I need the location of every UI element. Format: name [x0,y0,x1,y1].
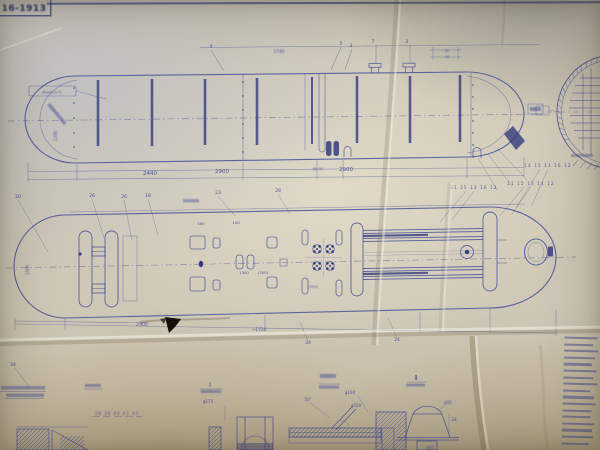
technical-drawing: 2440290080 40290057404537250408mm≈175120… [0,0,600,450]
dim-5740: 5740 [274,49,285,54]
manhole [525,239,554,265]
dim-50: 50 [445,49,449,53]
detail-views [0,368,459,450]
notes-line [563,409,592,412]
dim-d550: φ550 [351,403,362,408]
balloon-row-c: 21 25 13 16 12 [450,185,497,190]
blueprint-photo: 2440290080 40290057404537250408mm≈175120… [0,0,600,450]
balloon-34-a: 34 [305,340,311,346]
notes-line [562,422,594,425]
balloon-34-b: 34 [10,362,16,368]
title-block: 16-1913 [0,0,51,16]
detail-a-flange [209,405,273,450]
notes-line [562,416,590,419]
dim-350: (350) [308,284,319,289]
balloon-3: 3 [350,43,353,49]
rail-nozzle-dot [465,250,469,254]
bevel-note-strip [47,103,66,125]
notes-line [562,442,589,445]
balloon-23: 23 [215,190,221,196]
drain-nozzle-dark-a [326,141,332,156]
rivet-dots [73,81,474,153]
left-head-nozzle-dot [78,252,81,255]
dim-1200: 1200 [53,130,58,141]
notes-line [563,396,594,399]
part-number-row: 38 39 40 41 42 [95,411,140,416]
notes-line [562,435,593,438]
dim-1500: 1500 [25,264,30,275]
balloon-row-b: 11 15 13 14 12 [507,181,554,186]
notes-line [563,383,597,386]
detail-label-2: Ⅱ [414,374,417,382]
notes-line [563,389,590,392]
balloon-18: 18 [145,193,151,199]
end-view-note-strip [571,154,593,157]
notes-line [564,370,597,373]
callout-box-left-leader [76,91,106,99]
dim-2905: 2905 [136,322,148,328]
end-view [536,55,600,170]
bottom-fittings [326,141,481,158]
label-strips [1,374,425,397]
dim-d175: φ175 [203,399,214,404]
notes-line [564,350,598,353]
balloon-26-b: 26 [121,194,127,200]
dim-d95: φ95 [444,400,452,405]
annotation-texts: 2440290080 40290057404537250408mm≈175120… [10,39,572,450]
dim-580: 580 [197,221,205,226]
balloon-28: 28 [275,188,281,194]
notes-line [564,356,595,359]
ladder-rungs [569,68,600,155]
drawing-number: 16-1913 [2,3,47,15]
heating-coil-left [79,231,137,307]
balloon-26-a: 26 [89,193,95,199]
callout-box-right-text [530,107,541,111]
drain-nozzle-outline-a [344,147,351,158]
bottom-leaders [15,368,30,388]
dim-80-40: 80 40 [313,167,324,171]
plan-centerline [6,257,576,268]
balloon-leaders [18,169,548,341]
dim-d50: φ50 [426,445,434,450]
balloon-row-a: 14 15 13 16 12 [524,163,571,168]
balloon-20: 20 [15,194,21,200]
elevation-dimensions [28,45,540,183]
rail-assembly [351,212,507,296]
plan-dimensions [15,199,556,336]
balloon-2: 2 [406,39,409,45]
dim-28: 28 [451,417,457,422]
dim-1300: 1300 [239,270,249,275]
notes-column [562,337,600,450]
balloon-7: 7 [372,39,375,45]
notes-line [562,429,592,432]
elevation-view [8,45,545,191]
notes-line [563,402,596,405]
balloon-24: 24 [394,337,400,343]
dim-2900-a: 2900 [215,169,229,175]
notes-line [564,363,592,366]
baffle-plates [98,75,460,146]
note-8mm: 8mm≈175 [42,91,61,95]
notes-line [563,376,593,379]
notes-line [564,337,597,340]
paper-tear [160,317,181,333]
dim-d190: φ190 [345,390,356,395]
dim-2900-b: 2900 [339,167,353,173]
dim-1724: ~1724 [252,327,267,332]
detail-b-flange [289,396,406,450]
vessel-centerline [8,114,545,121]
dim-40: 40 [445,55,449,59]
dim-300: (300) [258,270,269,275]
paper-creases [0,0,600,450]
balloon-5: 5 [340,41,343,47]
balloon-4: 4 [210,44,213,50]
head-inner-rim [562,60,600,165]
notes-line [564,343,593,346]
dim-50deg: 50° [304,397,311,402]
dim-100: 100 [232,220,240,225]
detail-label-1: Ⅰ [209,381,211,389]
dim-2440: 2440 [143,171,157,177]
label-underlines [0,382,427,417]
drain-nozzle-dark-b [334,141,340,156]
internal-dip-tubes [305,74,325,152]
